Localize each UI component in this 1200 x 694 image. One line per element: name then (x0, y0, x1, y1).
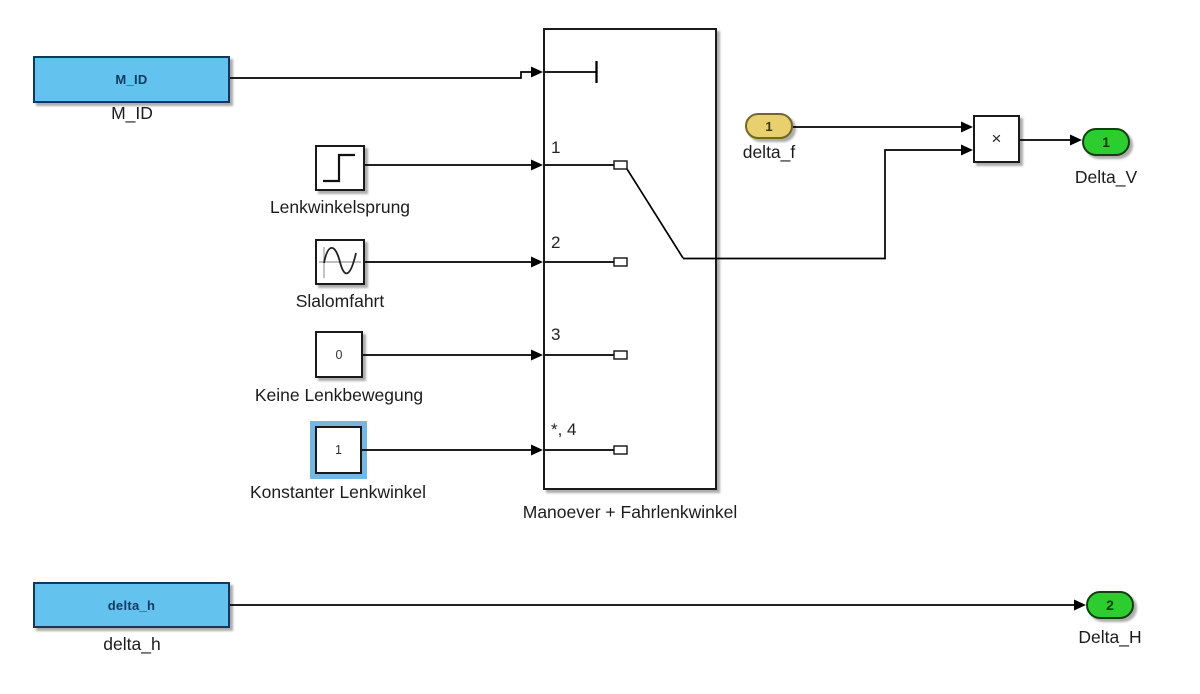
product-block[interactable]: × (973, 115, 1020, 163)
outport-delta-v-number: 1 (1102, 134, 1110, 150)
multiport-switch-block[interactable]: 1 2 3 *, 4 (543, 28, 717, 490)
switch-port-label-2: 2 (551, 233, 560, 253)
delta-h-label: Delta_H (960, 627, 1200, 648)
delta-f-label: delta_f (619, 142, 919, 163)
constant-value-one: 1 (335, 443, 342, 457)
keine-lenkbewegung-label: Keine Lenkbewegung (189, 385, 489, 406)
inport-delta-f-number: 1 (765, 119, 772, 134)
sine-wave-icon (317, 241, 363, 283)
konstanter-lenkwinkel-label: Konstanter Lenkwinkel (188, 482, 488, 503)
constant-block-keine-lenkbewegung[interactable]: 0 (315, 331, 363, 378)
switch-port-label-3: 3 (551, 325, 560, 345)
constant-block-konstanter-lenkwinkel[interactable]: 1 (315, 426, 362, 474)
step-signal-icon (317, 147, 363, 189)
outport-delta-h[interactable]: 2 (1086, 591, 1134, 619)
wire-switch-to-product (683, 150, 962, 259)
wire-mid-to-control (230, 72, 533, 78)
simulink-canvas: M_ID M_ID Lenkwinkelsprung Slalomfahrt 0… (0, 0, 1200, 694)
constant-value-zero: 0 (336, 348, 343, 362)
sine-block-slalomfahrt[interactable] (315, 239, 365, 285)
inport-delta-f[interactable]: 1 (745, 113, 793, 139)
outport-delta-v[interactable]: 1 (1082, 128, 1130, 156)
m-id-label: M_ID (0, 103, 282, 124)
switch-port-label-1: 1 (551, 138, 560, 158)
delta-v-label: Delta_V (956, 167, 1200, 188)
delta-h-tag-text: delta_h (108, 598, 156, 613)
m-id-tag-text: M_ID (115, 72, 147, 87)
from-block-m-id[interactable]: M_ID (33, 56, 230, 103)
lenkwinkelsprung-label: Lenkwinkelsprung (190, 197, 490, 218)
switch-port-label-4: *, 4 (551, 420, 577, 440)
multiply-operator: × (992, 129, 1002, 149)
from-block-delta-h[interactable]: delta_h (33, 582, 230, 628)
multiport-switch-label: Manoever + Fahrlenkwinkel (480, 502, 780, 523)
outport-delta-h-number: 2 (1106, 597, 1114, 613)
slalomfahrt-label: Slalomfahrt (190, 291, 490, 312)
delta-h-block-label: delta_h (0, 634, 282, 655)
step-block-lenkwinkelsprung[interactable] (315, 145, 365, 191)
